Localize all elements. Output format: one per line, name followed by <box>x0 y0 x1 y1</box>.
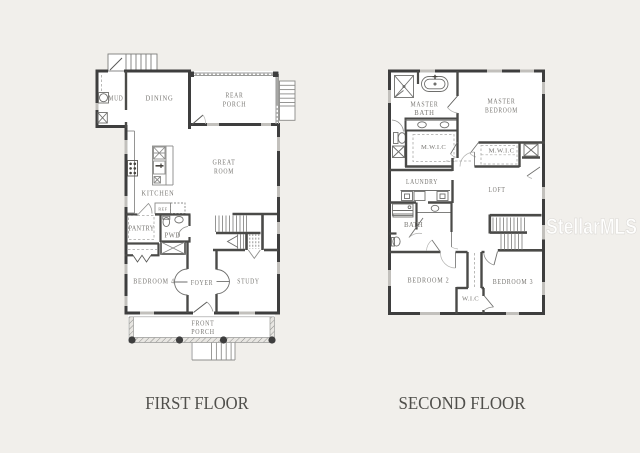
svg-text:MUD: MUD <box>109 95 124 103</box>
svg-text:GREAT: GREAT <box>213 158 236 167</box>
svg-text:BATH: BATH <box>414 108 435 117</box>
svg-text:BEDROOM 4: BEDROOM 4 <box>133 277 175 286</box>
svg-text:REF: REF <box>158 207 167 212</box>
svg-text:ROOM: ROOM <box>214 167 234 176</box>
svg-text:M.W.I.C: M.W.I.C <box>489 148 515 155</box>
svg-text:REAR: REAR <box>226 91 244 100</box>
svg-text:PWD: PWD <box>165 232 181 240</box>
svg-text:PORCH: PORCH <box>223 100 247 109</box>
svg-text:STUDY: STUDY <box>237 277 260 286</box>
svg-text:W.I.C: W.I.C <box>462 296 479 303</box>
svg-text:MASTER: MASTER <box>488 97 516 106</box>
svg-text:BEDROOM 3: BEDROOM 3 <box>493 277 534 286</box>
svg-text:FOYER: FOYER <box>191 278 214 287</box>
svg-text:FIRST FLOOR: FIRST FLOOR <box>145 393 249 413</box>
svg-text:BEDROOM 2: BEDROOM 2 <box>408 276 450 285</box>
svg-text:DINING: DINING <box>146 94 174 103</box>
svg-text:BEDROOM: BEDROOM <box>485 106 518 115</box>
svg-text:PANTRY: PANTRY <box>129 225 155 233</box>
svg-text:LAUNDRY: LAUNDRY <box>406 177 438 186</box>
svg-text:LOFT: LOFT <box>489 185 506 194</box>
svg-text:M.W.I.C: M.W.I.C <box>421 144 446 151</box>
svg-text:SECOND FLOOR: SECOND FLOOR <box>399 393 526 413</box>
svg-text:StellarMLS: StellarMLS <box>546 214 637 239</box>
svg-text:PORCH: PORCH <box>191 327 215 336</box>
svg-text:KITCHEN: KITCHEN <box>142 189 175 198</box>
